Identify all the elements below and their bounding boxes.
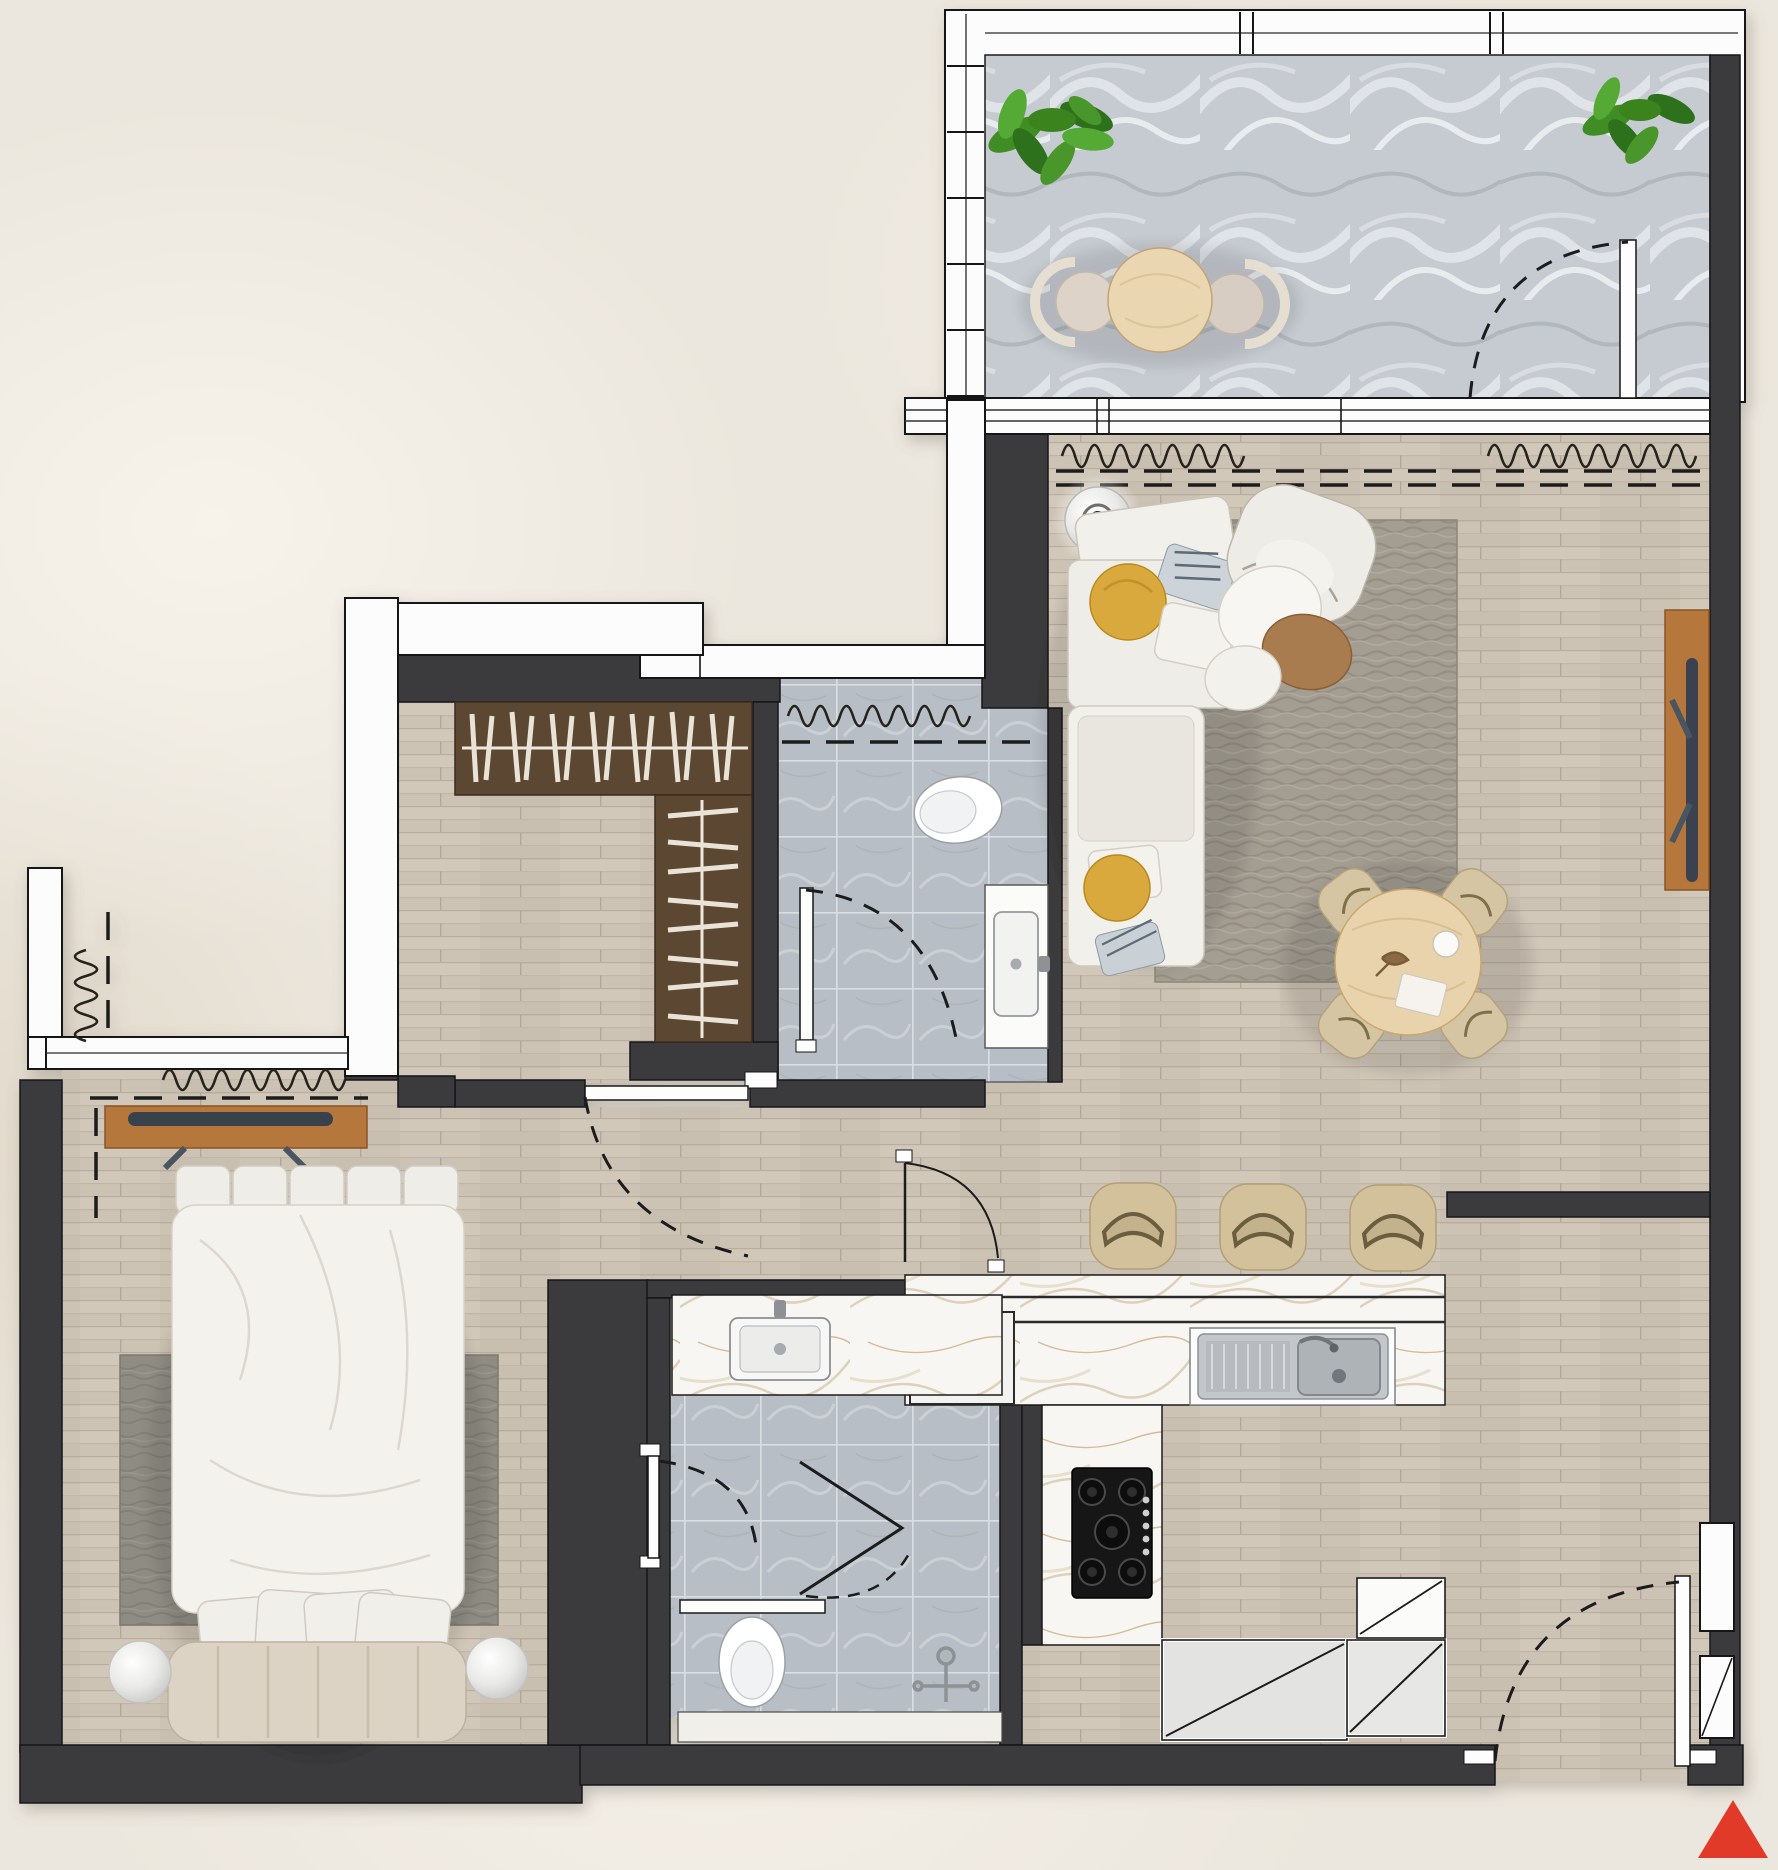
door-leaf [648,1456,659,1558]
door-leaf [800,888,813,1040]
wall-segment [1022,1405,1042,1645]
floor-plan-canvas [0,0,1778,1870]
duvet [172,1205,464,1613]
bedroom-nook-floor [548,1107,648,1282]
wall-segment [753,702,778,1082]
wall-segment [1710,55,1740,1755]
cafe-table [1108,248,1212,352]
marble-bench [678,1712,1002,1742]
nightstand [109,1641,171,1703]
door-leaf [585,1086,748,1100]
vanity-counter [672,1295,1002,1395]
wall-segment [982,418,1048,708]
entry-threshold-floor [1495,1745,1690,1781]
entry-wall-niche [1700,1523,1734,1631]
gas-hob [1072,1468,1152,1598]
wall-segment [750,1080,985,1107]
shower-glass-panel [680,1600,825,1613]
apartment-plan [20,10,1745,1803]
curtain-wave [75,950,97,1041]
round-cushion [1090,564,1166,640]
wall-segment [1447,1192,1710,1217]
sink-bowl [1298,1339,1380,1395]
wall-segment [398,1076,455,1107]
faucet-icon [774,1300,786,1318]
wall-segment [455,1080,585,1107]
kitchen-sink [1190,1328,1395,1405]
hall-floor [645,1107,888,1282]
wall-segment [580,1745,1495,1785]
tv-screen [128,1112,333,1126]
cup-icon [1433,931,1459,957]
faucet-icon [1038,956,1050,972]
vanity-sink [985,885,1050,1048]
door-leaf [1675,1576,1690,1766]
dressing-window-band [348,603,703,655]
dining-table [1335,889,1481,1035]
tv-screen [1686,658,1698,882]
wall-segment [20,1080,62,1752]
wall-segment [548,1280,648,1745]
nightstand [466,1637,528,1699]
bedroom-side-window [28,868,62,1050]
tv-console-living [1665,610,1709,890]
bar-stools [1090,1183,1436,1271]
red-triangle-marker [1698,1800,1768,1858]
white-column [345,598,398,1076]
round-cushion [1084,855,1150,921]
sliding-glass-door [905,398,1710,434]
door-leaf [1620,240,1636,398]
side-window [947,400,985,678]
